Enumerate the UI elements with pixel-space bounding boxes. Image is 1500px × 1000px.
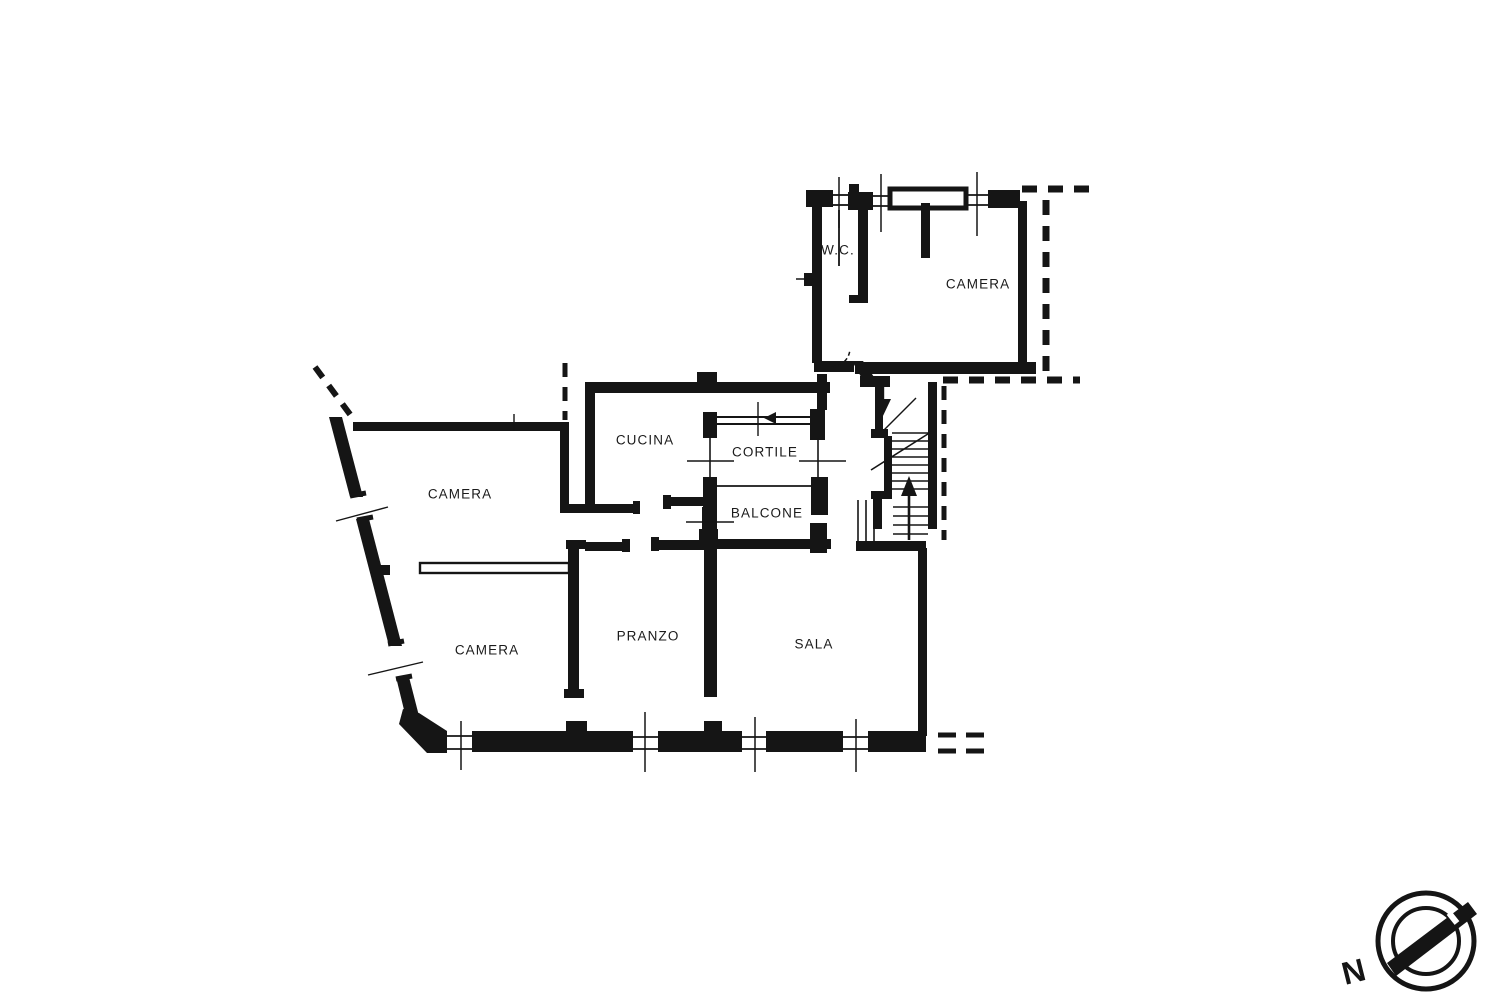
cortile-balcone: [686, 402, 846, 553]
staircase: [858, 380, 937, 543]
floor-plan-page: N W.C.CAMERACUCINACORTILEBALCONECAMERACA…: [0, 0, 1500, 1000]
exterior-west-south-walls: [329, 417, 926, 772]
cortile-door-arrow: [764, 412, 776, 424]
main-block-walls: [353, 372, 927, 736]
room-label-cortile: CORTILE: [732, 445, 798, 460]
dashed-boundary-lines: [315, 189, 1090, 751]
room-label-sala: SALA: [795, 637, 834, 652]
compass-rose: N: [1338, 893, 1477, 992]
stair-treads: [858, 433, 928, 543]
room-label-camera-ne: CAMERA: [946, 277, 1010, 292]
room-label-balcone: BALCONE: [731, 506, 803, 521]
room-label-cucina: CUCINA: [616, 433, 674, 448]
room-label-camera-sw: CAMERA: [455, 643, 519, 658]
floor-plan-drawing: N: [0, 0, 1500, 1000]
compass-north-label: N: [1338, 951, 1369, 992]
room-label-pranzo: PRANZO: [617, 629, 680, 644]
room-label-wc: W.C.: [821, 243, 855, 258]
room-label-camera-w: CAMERA: [428, 487, 492, 502]
compass-needle: [1387, 902, 1477, 976]
stair-up-arrow: [901, 476, 917, 540]
